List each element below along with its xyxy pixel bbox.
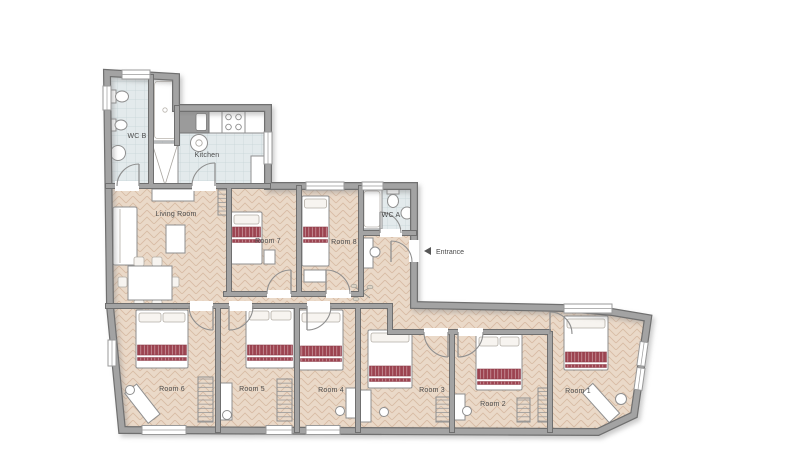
nightstand xyxy=(264,250,275,264)
bidet-icon xyxy=(115,120,127,130)
stool-icon xyxy=(336,407,345,416)
pillow xyxy=(163,313,185,322)
chair xyxy=(152,257,162,266)
pillow xyxy=(139,313,161,322)
pillow xyxy=(271,311,291,320)
kitchen-sink-icon xyxy=(196,114,207,131)
window xyxy=(306,426,340,435)
pillow xyxy=(500,337,519,346)
window xyxy=(306,182,344,190)
window xyxy=(362,182,383,190)
sofa xyxy=(113,207,137,265)
window xyxy=(266,426,292,435)
toilet-icon xyxy=(388,195,399,208)
window xyxy=(264,132,272,164)
coffee-table xyxy=(166,225,185,253)
chair xyxy=(134,257,144,266)
boiler-icon xyxy=(191,135,208,152)
label-room-2: Room 2 xyxy=(480,401,506,408)
pillow xyxy=(302,313,340,322)
stool-icon xyxy=(126,386,135,395)
entrance-label: Entrance xyxy=(436,249,464,256)
label-room-8: Room 8 xyxy=(331,239,357,246)
radiator xyxy=(198,377,213,422)
entrance-marker: Entrance xyxy=(424,247,464,256)
floor-plan-canvas: WC B Kitchen Living Room Room 7 Room 8 W… xyxy=(0,0,799,449)
bed-room5 xyxy=(246,308,294,368)
wcb-closet xyxy=(152,143,178,185)
radiator xyxy=(277,379,292,421)
label-living-room: Living Room xyxy=(155,211,196,218)
bed-room8 xyxy=(302,196,329,266)
stool-icon xyxy=(223,411,232,420)
label-room-1: Room 1 xyxy=(565,388,591,395)
window xyxy=(142,426,186,435)
bed-bench xyxy=(304,270,326,282)
window xyxy=(122,70,150,79)
sink-icon xyxy=(111,146,126,161)
pillow xyxy=(305,199,327,208)
entrance-arrow-icon xyxy=(424,247,431,255)
bed-room1 xyxy=(564,316,608,370)
bed-room2 xyxy=(476,334,522,390)
pillow xyxy=(234,215,259,224)
pillow xyxy=(567,319,605,328)
label-kitchen: Kitchen xyxy=(195,152,220,159)
label-room-4: Room 4 xyxy=(318,387,344,394)
window xyxy=(108,340,116,366)
window xyxy=(564,304,612,313)
window xyxy=(103,86,111,110)
bed-room4 xyxy=(299,310,343,370)
radiator xyxy=(517,398,530,422)
dining-table xyxy=(128,266,172,300)
toilet-icon xyxy=(116,91,129,102)
label-wc-b: WC B xyxy=(127,133,146,140)
label-room-5: Room 5 xyxy=(239,386,265,393)
label-room-7: Room 7 xyxy=(255,238,281,245)
stool-icon xyxy=(616,394,627,405)
stool-icon xyxy=(463,407,472,416)
bed-room3 xyxy=(368,330,412,388)
desk-room2 xyxy=(454,394,465,420)
label-room-6: Room 6 xyxy=(159,386,185,393)
stove xyxy=(222,111,245,133)
shower-stall xyxy=(362,189,382,229)
stool-icon xyxy=(380,408,389,417)
chair xyxy=(118,277,127,287)
sideboard xyxy=(152,189,194,201)
bed-room6 xyxy=(136,310,188,368)
stool-icon xyxy=(370,247,380,257)
radiator xyxy=(436,397,451,422)
label-wc-a: WC A xyxy=(382,212,401,219)
label-room-3: Room 3 xyxy=(419,387,445,394)
floor-plan-svg: WC B Kitchen Living Room Room 7 Room 8 W… xyxy=(0,0,799,449)
